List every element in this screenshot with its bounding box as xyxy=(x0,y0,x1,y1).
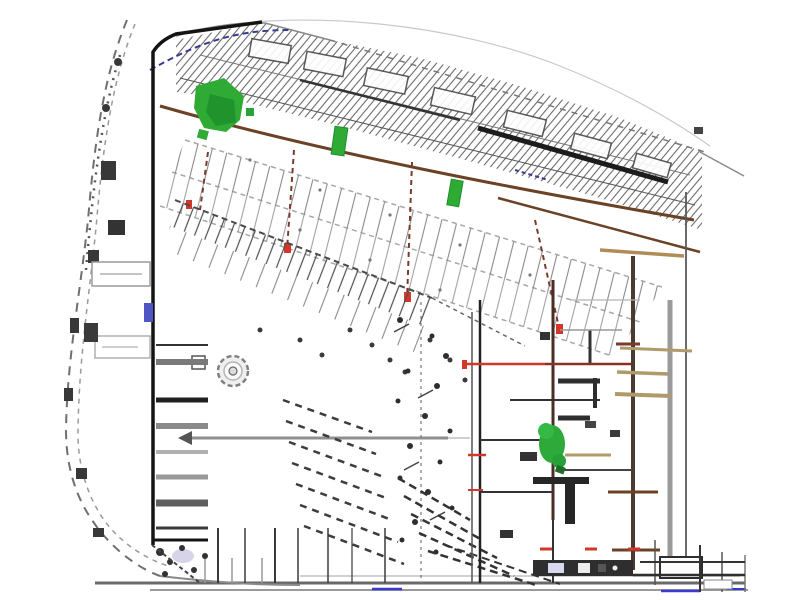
bottom-stall-ticks xyxy=(205,528,385,583)
tan-curb-line xyxy=(600,250,684,256)
diagonal-stripes-upper xyxy=(283,400,404,564)
tree-symbol xyxy=(218,356,248,386)
blue-marker-chip xyxy=(144,303,153,322)
canopy-t-structure xyxy=(533,477,589,524)
roadside-tree-marks xyxy=(64,58,122,537)
drive-aisle-arrow xyxy=(178,431,470,445)
site-plan-page xyxy=(0,0,800,600)
site-plan-drawing xyxy=(0,0,800,600)
